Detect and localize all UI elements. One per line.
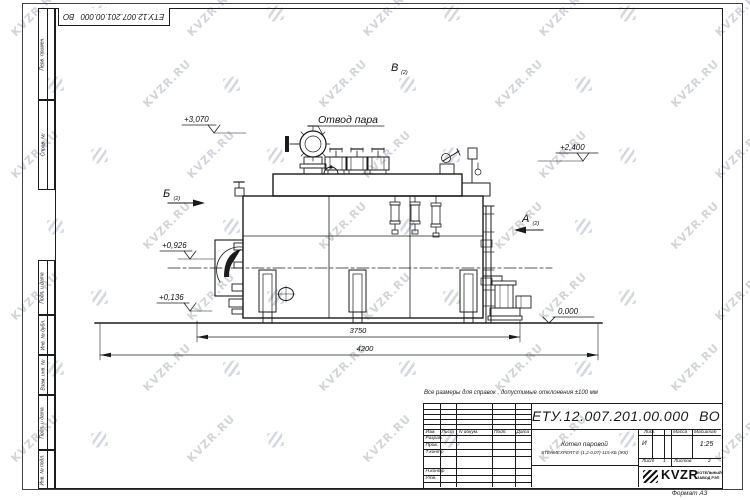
company-subtitle: КОТЕЛЬНЫЙ ЗАВОД РЭП: [697, 471, 722, 480]
steam-outlet-label: Отвод пара: [318, 114, 378, 126]
masshtab-header: Масштаб: [694, 430, 716, 435]
line: [664, 429, 665, 458]
valve-handwheel: [285, 136, 289, 152]
dimension-3750-label: 3750: [350, 326, 368, 335]
sheet-label: Лист: [642, 459, 654, 464]
scale-value: 1:25: [692, 441, 721, 448]
rear-stack-fitting: [468, 148, 481, 183]
sheet-value: 1: [663, 459, 666, 464]
view-v-label: В: [391, 62, 398, 74]
steam-outlet-valve: [285, 126, 330, 174]
role-prov: Пров.: [426, 443, 439, 448]
line: [638, 435, 721, 436]
product-name-line1: Котел паровой: [561, 441, 608, 448]
elevation-mark-0000: [543, 317, 594, 323]
manhole: [277, 286, 295, 302]
sheets-total-label: Листов: [674, 459, 691, 464]
lever-safety-valve: [440, 149, 460, 174]
line: [531, 465, 638, 466]
tolerance-note: Все размеры для справок , допустимые отк…: [424, 390, 598, 396]
view-b-sheet-ref: (2): [174, 196, 181, 202]
col-izm: Изм.: [426, 430, 436, 435]
water-level-gauges: [390, 196, 441, 237]
elevation-0000-label: 0,000: [558, 307, 579, 316]
kvzr-logo-icon: [643, 470, 658, 483]
title-block: Изм. Лист N докум. Подп. Дата Разраб. Пр…: [423, 403, 723, 489]
product-name: Котел паровой STEAMEXPERT-Е-(1,2-0,07)-1…: [533, 432, 636, 464]
section-arrow-a: [514, 227, 543, 234]
elevation-mark-0926: [160, 251, 214, 259]
doc-number: ЕТУ.12.007.201.00.000 ВО: [531, 406, 721, 427]
elevation-3070-label: +3,070: [184, 115, 209, 124]
line: [515, 404, 516, 487]
product-name-line2: STEAMEXPERT-Е-(1,2-0,07)-115-КБ (ЖК): [541, 450, 628, 455]
elevation-2400-label: +2,400: [560, 143, 585, 152]
sheets-total-value: 2: [708, 459, 711, 464]
role-razrab: Разраб.: [426, 436, 443, 441]
elevation-mark-0136: [157, 303, 212, 311]
dimension-4200-label: 4200: [357, 344, 375, 353]
role-utv: Утв.: [426, 476, 437, 481]
lit-value: И: [642, 440, 647, 447]
company-subtitle-line1: КОТЕЛЬНЫЙ: [697, 471, 722, 476]
col-list: Лист: [442, 430, 454, 435]
role-nkontr: Н.контр: [426, 469, 445, 474]
line: [440, 404, 441, 487]
boiler-body: [243, 196, 483, 318]
lit-header: Лит.: [644, 430, 655, 435]
view-v-sheet-ref: (2): [401, 70, 408, 76]
view-a-label: А: [521, 213, 529, 225]
elevation-mark-3070: [182, 125, 246, 133]
view-a-sheet-ref: (2): [533, 221, 540, 227]
support-legs: [259, 270, 477, 323]
col-ndokum: N докум.: [459, 430, 478, 435]
format-label: Формат А3: [652, 490, 727, 497]
col-podp: Подп.: [494, 430, 507, 435]
view-b-label: Б: [163, 188, 170, 200]
safety-valves: [325, 148, 389, 174]
company-subtitle-line2: ЗАВОД РЭП: [697, 476, 722, 481]
role-tkontr: Т.контр: [426, 450, 444, 455]
elevation-mark-2400: [538, 153, 598, 161]
steam-drum: [273, 174, 490, 196]
col-data: Дата: [517, 430, 530, 435]
steam-outlet-leader: [316, 126, 384, 135]
company-name: KVZR: [661, 467, 698, 482]
elevation-0926-label: +0,926: [162, 241, 187, 250]
line: [492, 404, 493, 487]
elevation-0136-label: +0,136: [159, 293, 184, 302]
line: [456, 404, 457, 487]
massa-header: Масса: [673, 430, 687, 435]
